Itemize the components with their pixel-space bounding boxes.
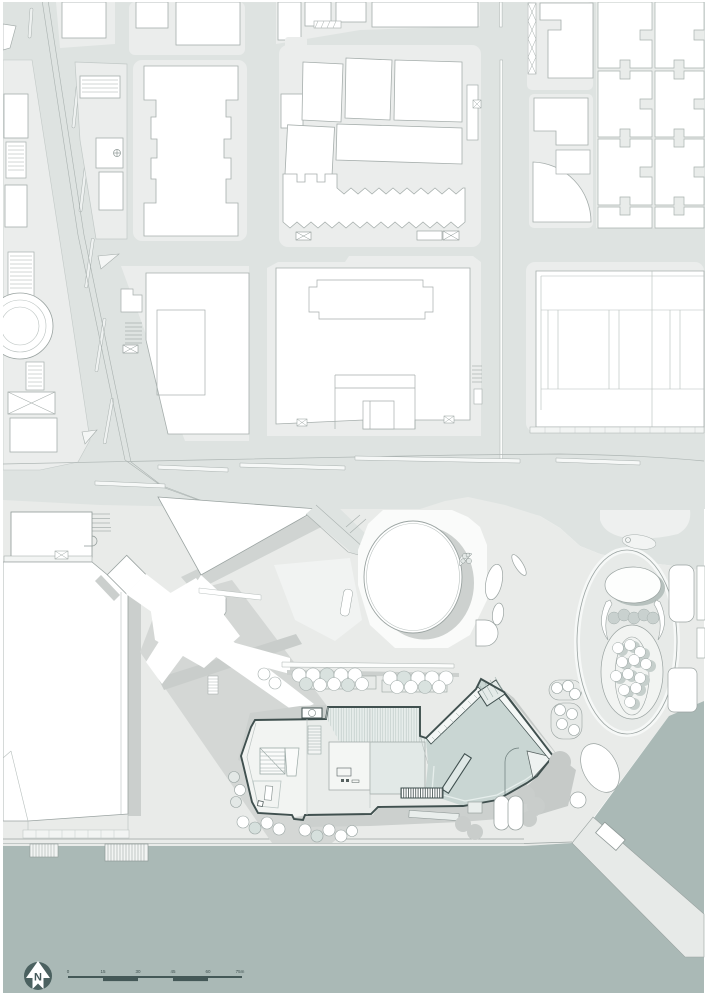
svg-text:N: N [34,972,42,984]
svg-text:15: 15 [100,969,106,974]
svg-text:75m: 75m [236,969,245,974]
svg-text:30: 30 [135,969,141,974]
svg-text:45: 45 [170,969,176,974]
svg-text:60: 60 [205,969,211,974]
